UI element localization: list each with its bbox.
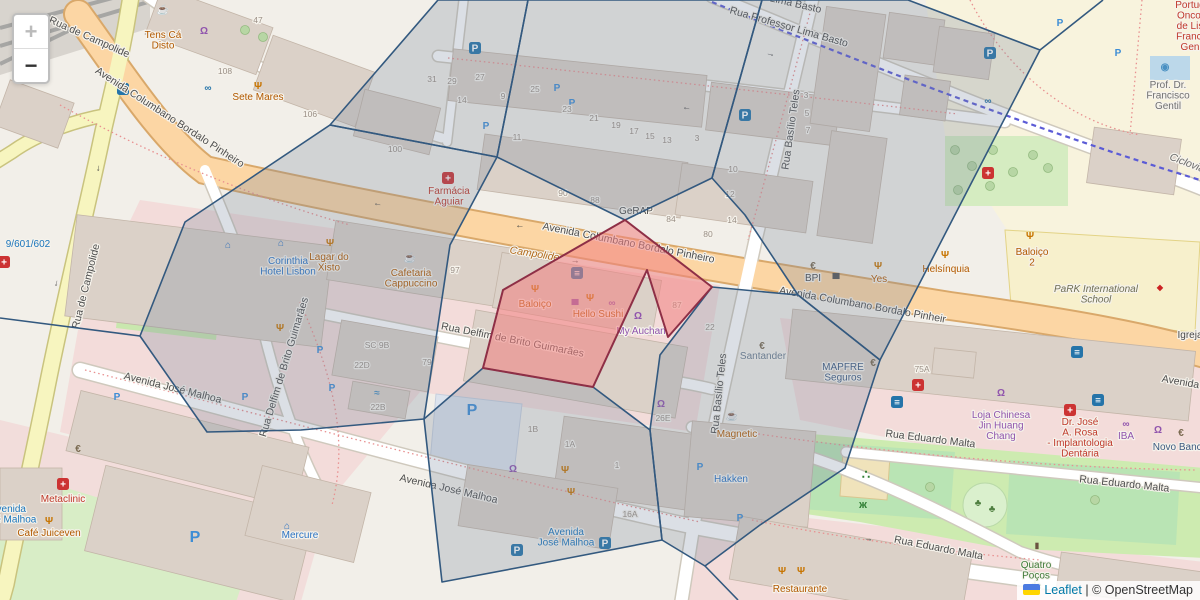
- restaurant-icon: Ψ: [941, 250, 949, 261]
- tree-icon: [1091, 496, 1100, 505]
- attribution-bar: Leaflet | © OpenStreetMap: [1017, 581, 1200, 600]
- dentist-icon: +: [1067, 406, 1073, 417]
- tree-icon: ♣: [975, 498, 982, 509]
- bicycle-icon: ∞: [204, 83, 211, 94]
- housenumber-label: 80: [703, 229, 713, 239]
- shop-icon: Ω: [997, 388, 1005, 399]
- fountain-icon: ◉: [1161, 62, 1170, 73]
- place-label: Restaurante: [773, 584, 828, 595]
- housenumber-label: 47: [253, 15, 263, 25]
- housenumber-label: 106: [303, 109, 317, 119]
- place-label: Novo Banco: [1153, 442, 1200, 453]
- bus-stop-icon: ≡: [1095, 396, 1101, 407]
- leaflet-link[interactable]: Leaflet: [1044, 583, 1082, 597]
- bus-stop-icon: ≡: [1074, 348, 1080, 359]
- housenumber-label: 14: [727, 215, 737, 225]
- clothes-shop-icon: Ω: [1154, 425, 1162, 436]
- zoom-in-button[interactable]: +: [14, 15, 48, 48]
- oneway-arrow-icon: →: [515, 223, 525, 234]
- restaurant-icon: Ψ: [1026, 231, 1034, 242]
- clinic-icon: +: [60, 480, 66, 491]
- ukraine-flag-icon: [1023, 584, 1040, 595]
- attribution-separator: |: [1082, 583, 1092, 597]
- tree-icon: [1044, 164, 1053, 173]
- housenumber-label: 84: [666, 214, 676, 224]
- tree-icon: [1009, 168, 1018, 177]
- monument-icon: ▮: [1035, 541, 1039, 550]
- place-label: Mercure: [282, 530, 319, 541]
- housenumber-label: 75A: [914, 364, 929, 374]
- cafe-icon: ☕: [157, 3, 169, 16]
- zoom-control: + −: [12, 13, 50, 84]
- shop-icon: Ω: [634, 311, 642, 322]
- oneway-arrow-icon: →: [94, 163, 105, 174]
- parking-icon: P: [114, 392, 121, 403]
- bus-stop-icon: ≡: [894, 398, 900, 409]
- oneway-arrow-icon: →: [863, 532, 874, 543]
- pharmacy-icon: +: [1, 258, 7, 269]
- parking-icon: P: [1057, 18, 1064, 29]
- restaurant-icon: Ψ: [778, 566, 786, 577]
- restaurant-icon: Ψ: [45, 516, 53, 527]
- fitness-icon: ж: [858, 499, 867, 511]
- scooter-icon: ∞: [1122, 419, 1129, 430]
- osm-attribution: © OpenStreetMap: [1092, 583, 1193, 597]
- leaflet-map[interactable]: ♣♣→→→→→→→→ΨΨΨΨΨΨΨΨΨΨΨΨΨ☕☕☕++++++ΩΩΩΩΩΩ∞∞…: [0, 0, 1200, 600]
- map-canvas: ♣♣→→→→→→→→ΨΨΨΨΨΨΨΨΨΨΨΨΨ☕☕☕++++++ΩΩΩΩΩΩ∞∞…: [0, 0, 1200, 600]
- tree-icon: ♣: [989, 504, 996, 515]
- place-label: IBA: [1118, 431, 1134, 442]
- tree-icon: [986, 182, 995, 191]
- place-label: 9/601/602: [6, 239, 51, 250]
- tree-icon: [926, 483, 935, 492]
- place-label: My Auchan: [616, 326, 665, 337]
- landuse-area: [1150, 56, 1190, 80]
- dog-park-icon: ∴: [862, 467, 870, 482]
- housenumber-label: 108: [218, 66, 232, 76]
- place-label: Igreja: [1177, 330, 1200, 341]
- restaurant-icon: Ψ: [797, 566, 805, 577]
- parking-icon: P: [190, 529, 201, 546]
- place-label: Metaclinic: [41, 494, 85, 505]
- place-label: Sete Mares: [232, 92, 283, 103]
- restaurant-icon: Ψ: [254, 81, 262, 92]
- dentist-icon: ◆: [1156, 283, 1164, 292]
- bank-icon: €: [75, 444, 81, 455]
- shoe-shop-icon: Ω: [200, 26, 208, 37]
- parking-icon: P: [1115, 48, 1122, 59]
- housenumber-label: 97: [450, 265, 460, 275]
- place-label: Café Juiceven: [17, 528, 80, 539]
- tree-icon: [259, 33, 268, 42]
- tree-icon: [1029, 151, 1038, 160]
- tree-icon: [241, 26, 250, 35]
- bank-icon: €: [1178, 428, 1184, 439]
- pharmacy-icon: +: [985, 169, 991, 180]
- clinic-icon: +: [915, 381, 921, 392]
- building: [932, 348, 976, 378]
- zoom-out-button[interactable]: −: [14, 49, 48, 82]
